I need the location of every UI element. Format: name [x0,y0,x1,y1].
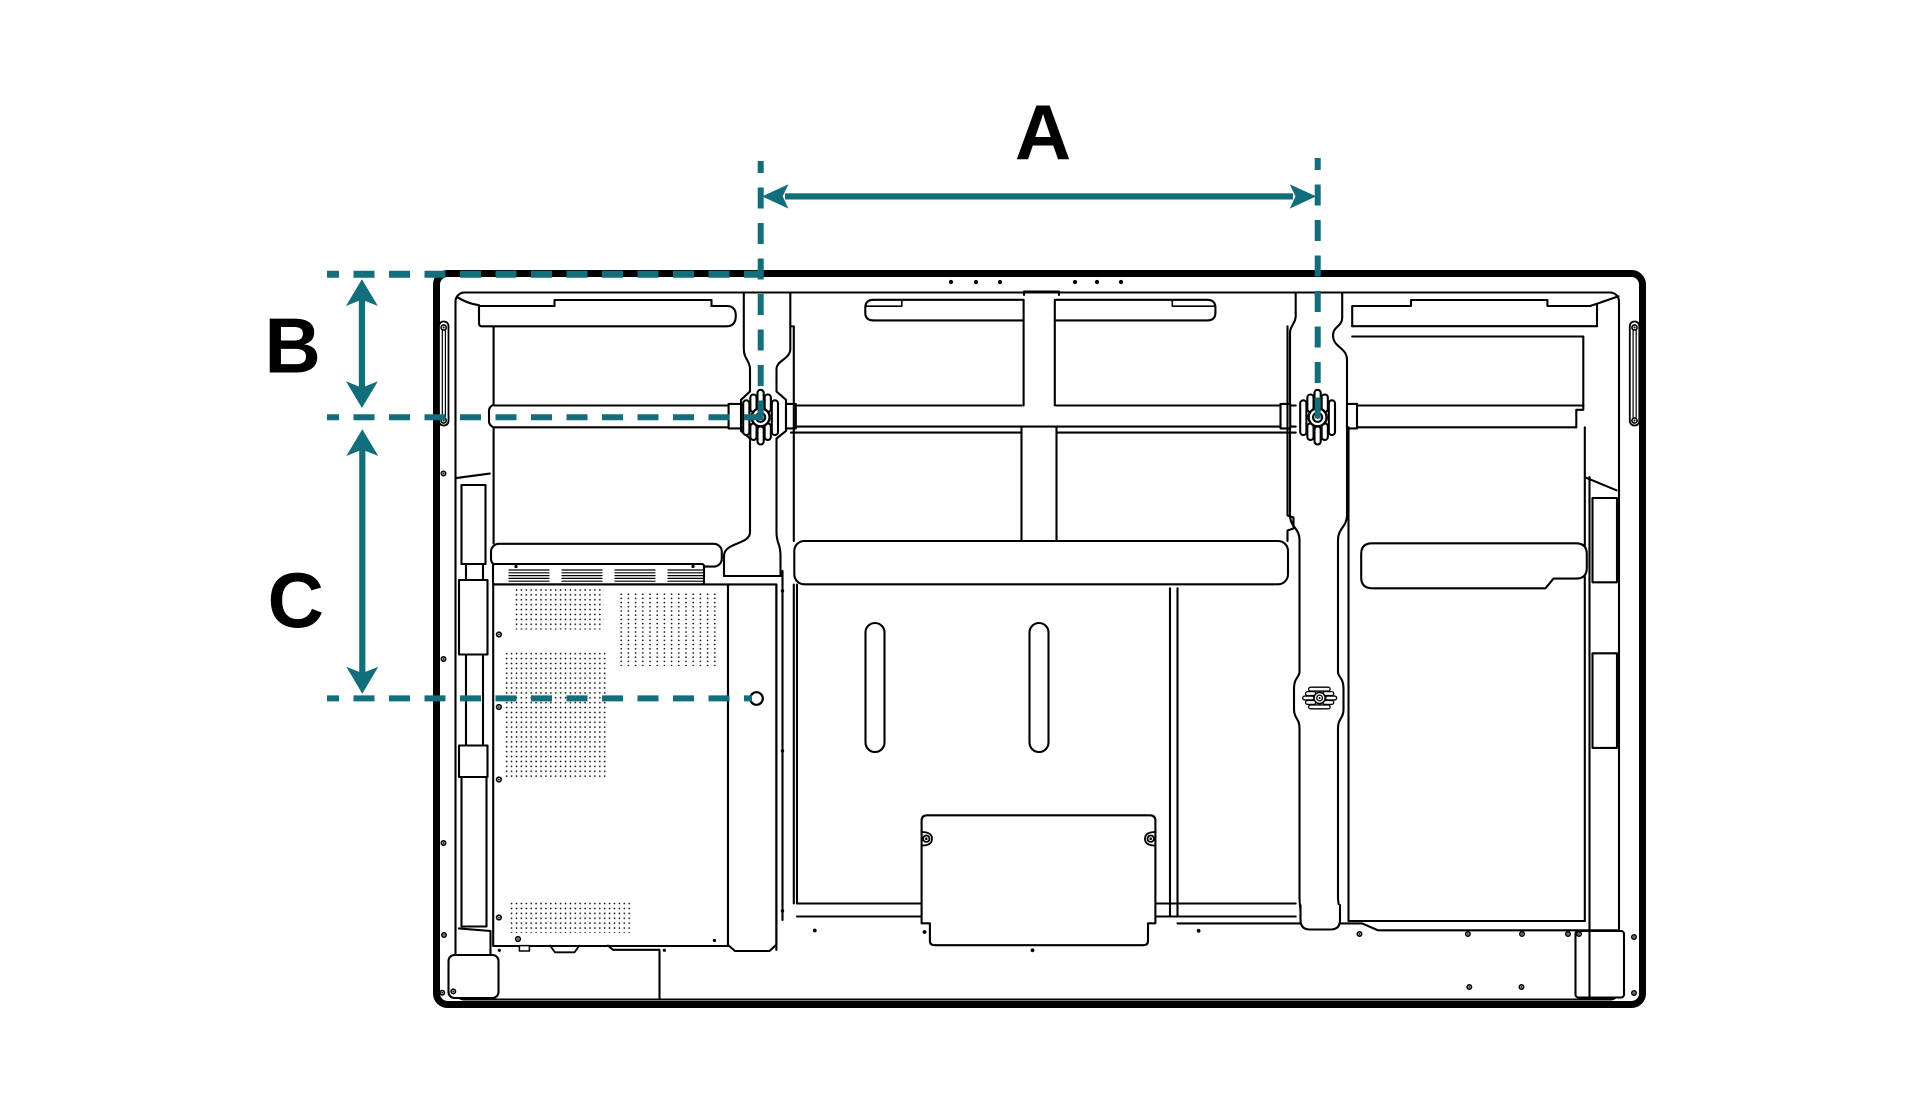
svg-text:C: C [268,556,324,644]
svg-text:A: A [1015,88,1071,176]
svg-text:B: B [265,301,321,389]
